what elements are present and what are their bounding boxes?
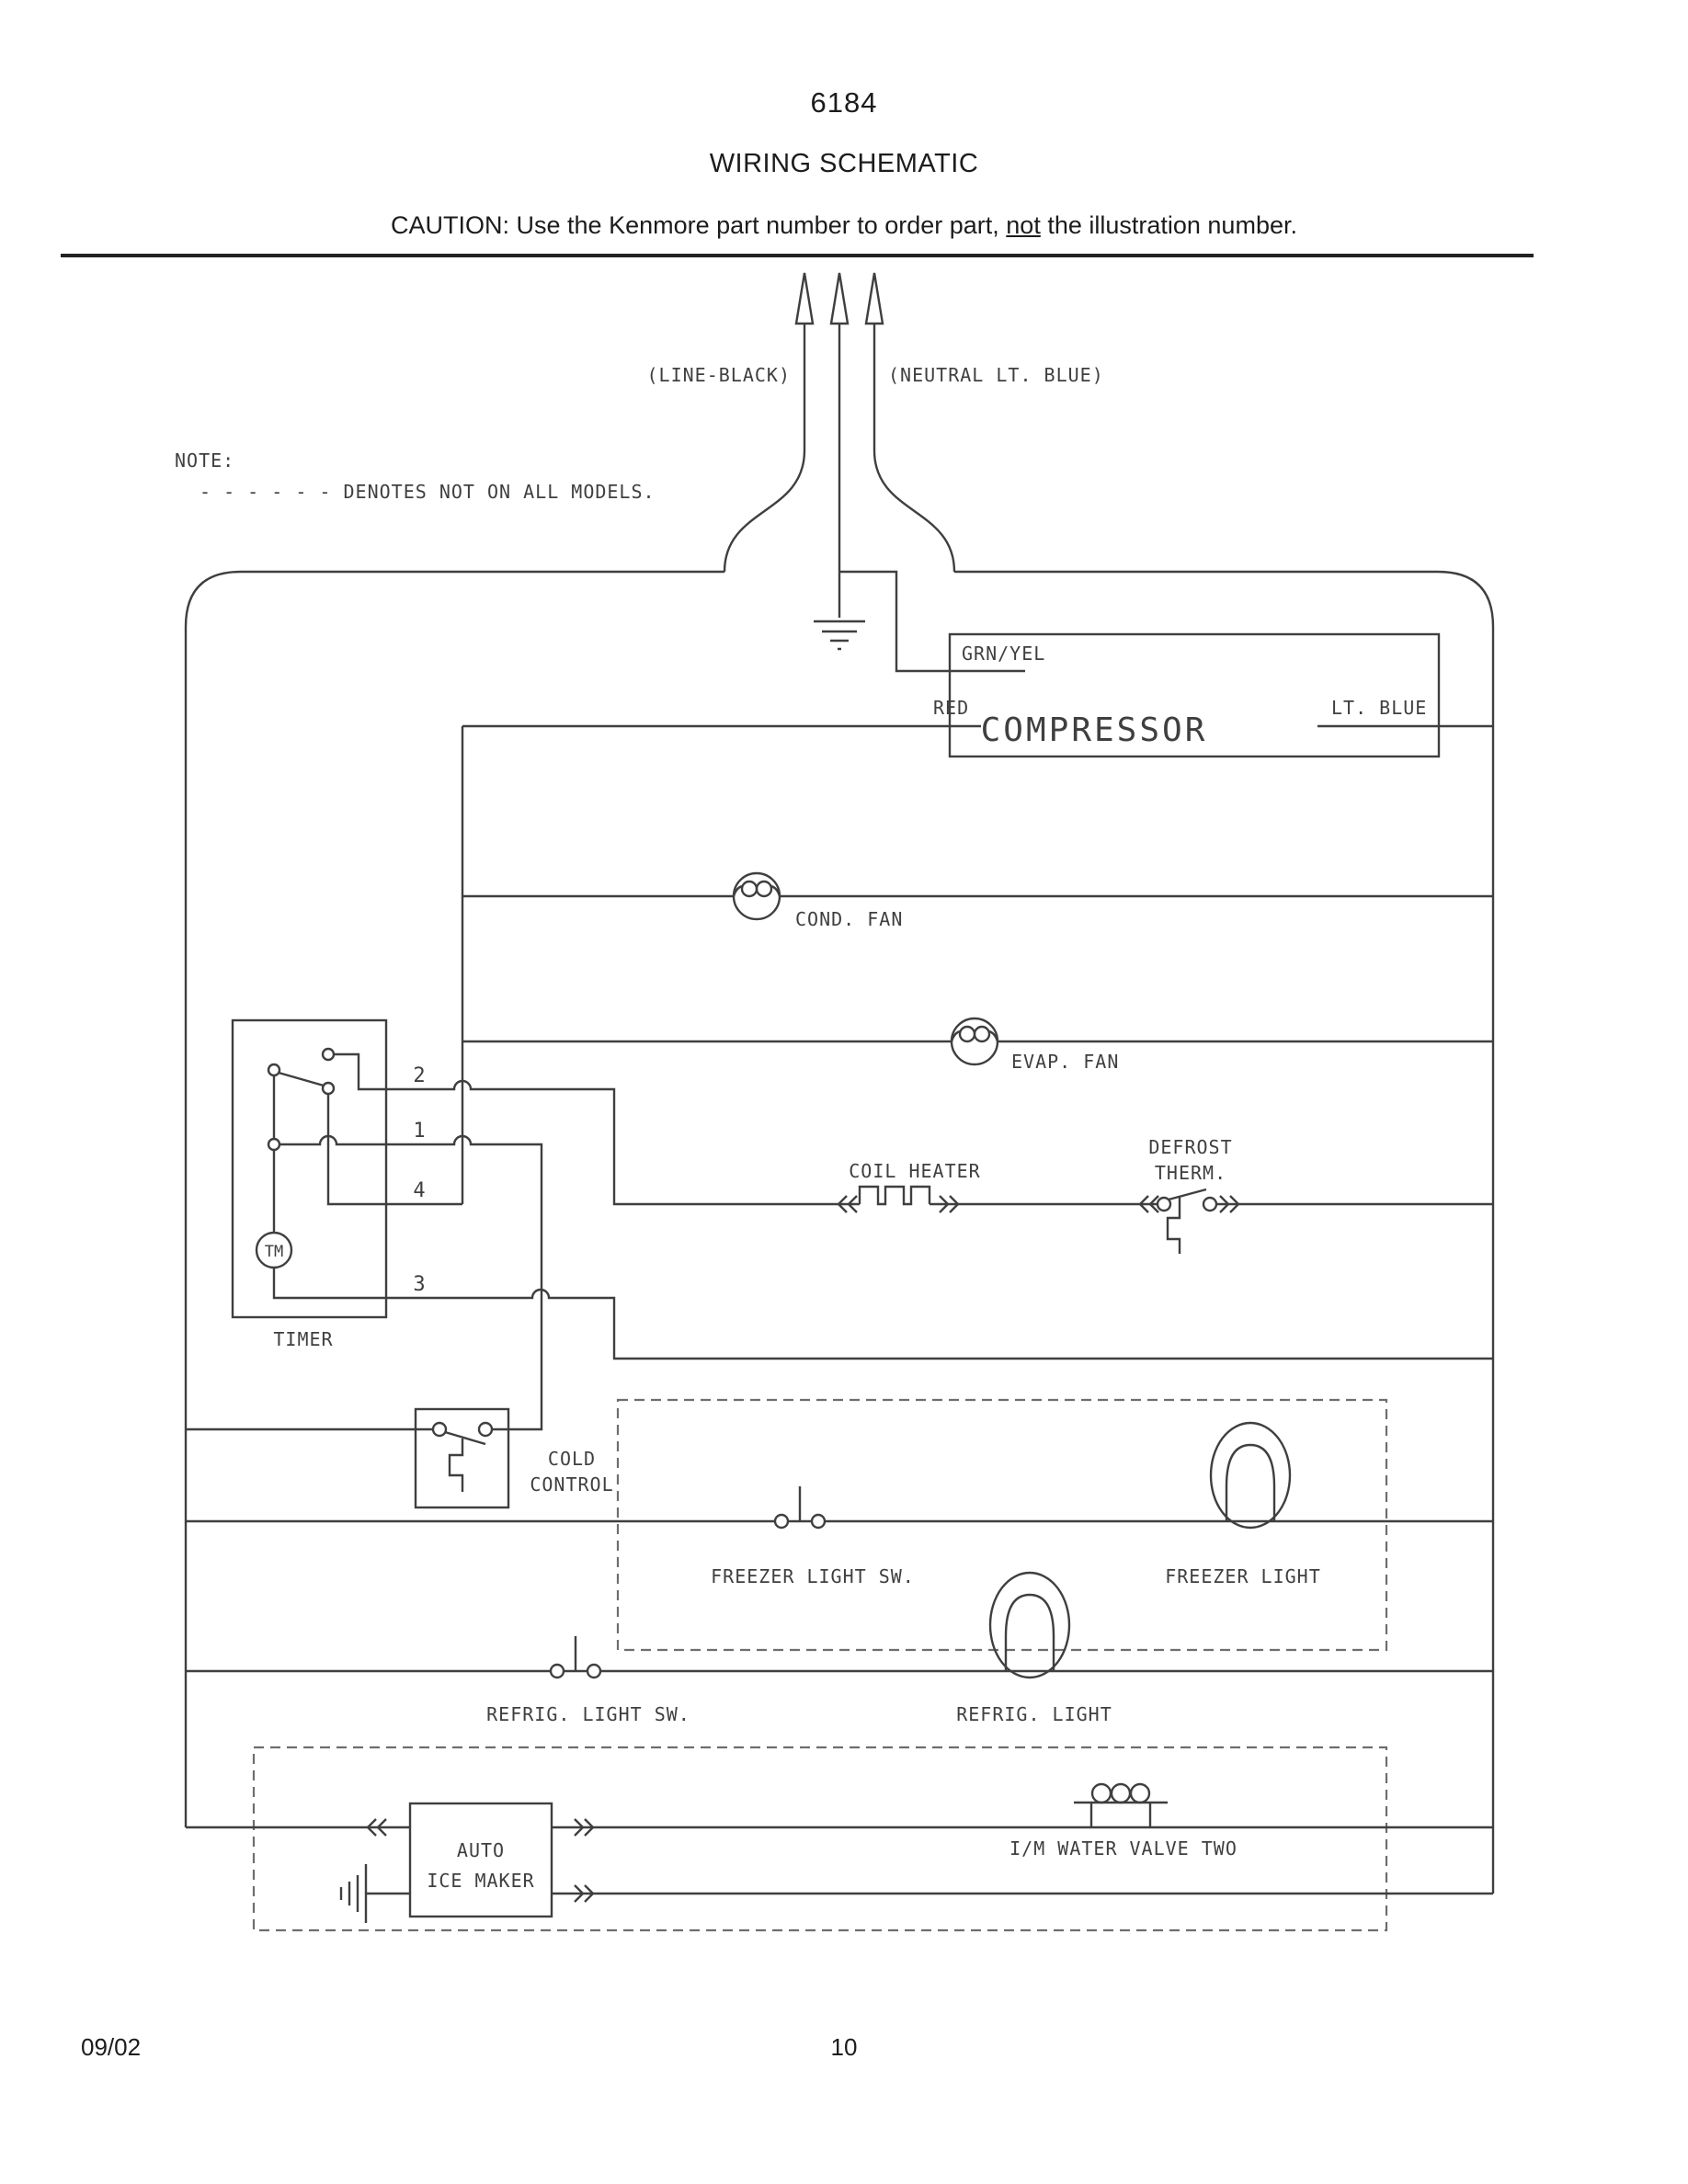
compressor-terminal-grnyel: GRN/YEL [962,643,1045,665]
timer-box [233,1020,386,1317]
cold-control-arm [445,1432,485,1444]
enclosure-right-edge [954,572,1493,1894]
ground-arrowhead-icon [831,273,848,324]
coil-heater-element [860,1187,930,1204]
timer-terminal-1 [268,1139,279,1150]
enclosure-left-top-edge [186,572,724,1827]
timer-contact-4 [323,1083,334,1094]
freezer-compartment-dashed-box [618,1400,1386,1650]
defrost-therm-label-1: DEFROST [1148,1136,1232,1158]
refrig-switch-contact-right [587,1665,600,1678]
note-label: NOTE: [175,449,234,472]
water-valve-label: I/M WATER VALVE TWO [1009,1837,1237,1860]
cold-control-contact-right [479,1423,492,1436]
compressor-label: COMPRESSOR [981,711,1208,749]
timer-wire-3 [274,1268,1493,1359]
cold-control-box [416,1409,508,1507]
neutral-wire [874,324,954,572]
refrig-light-label: REFRIG. LIGHT [956,1703,1112,1725]
refrig-light-bulb-icon [990,1573,1069,1678]
timer-wire-4 [328,1094,462,1204]
compressor-terminal-ltblue: LT. BLUE [1331,697,1427,719]
line-black-label: (LINE-BLACK) [647,364,792,386]
defrost-therm-contact-left [1158,1198,1170,1211]
timer-terminal-3-label: 3 [413,1273,425,1296]
line-black-arrowhead-icon [796,273,813,324]
neutral-label: (NEUTRAL LT. BLUE) [888,364,1104,386]
freezer-switch-contact-right [812,1515,825,1528]
timer-pivot-contact [268,1064,279,1075]
freezer-light-bulb-icon [1211,1423,1290,1528]
timer-terminal-2-label: 2 [413,1064,425,1087]
evap-fan-label: EVAP. FAN [1011,1051,1119,1073]
timer-label: TIMER [273,1328,333,1350]
ice-maker-ground-icon [341,1864,410,1923]
water-valve-coil-icon [1074,1784,1168,1827]
footer-page-number: 10 [0,2033,1688,2062]
ice-maker-label-2: ICE MAKER [427,1870,534,1892]
neutral-arrowhead-icon [866,273,883,324]
defrost-therm-arm [1169,1189,1206,1200]
compressor-terminal-red: RED [933,697,969,719]
line-black-wire [724,324,804,572]
evap-fan-motor-icon [952,1018,998,1064]
timer-switch-arm [279,1073,324,1086]
ice-maker-label-1: AUTO [457,1839,505,1861]
cond-fan-motor-icon [734,873,780,919]
cold-control-contact-left [433,1423,446,1436]
cold-control-sensor-icon [450,1439,462,1492]
supply-arrows [724,273,954,649]
schematic-page: { "header": { "part_number": "6184", "ti… [0,0,1688,2184]
cond-fan-label: COND. FAN [795,908,903,930]
defrost-therm-contact-right [1203,1198,1216,1211]
timer-terminal-4-label: 4 [413,1179,425,1202]
timer-terminal-1-label: 1 [413,1120,425,1143]
defrost-therm-label-2: THERM. [1155,1162,1226,1184]
freezer-light-sw-label: FREEZER LIGHT SW. [711,1565,915,1587]
timer-wire-1 [279,1136,542,1429]
earth-ground-icon [814,621,865,649]
cold-control-label-1: COLD [548,1448,596,1470]
wiring-diagram: (LINE-BLACK) (NEUTRAL LT. BLUE) NOTE: - … [0,0,1688,2184]
cold-control-label-2: CONTROL [530,1473,613,1496]
freezer-switch-contact-left [775,1515,788,1528]
refrig-switch-contact-left [551,1665,564,1678]
timer-motor-label: TM [265,1243,283,1261]
coil-heater-label: COIL HEATER [849,1160,980,1182]
timer-contact-2 [323,1049,334,1060]
freezer-light-label: FREEZER LIGHT [1165,1565,1321,1587]
refrig-light-sw-label: REFRIG. LIGHT SW. [486,1703,690,1725]
note-legend: - - - - - - DENOTES NOT ON ALL MODELS. [200,481,656,503]
